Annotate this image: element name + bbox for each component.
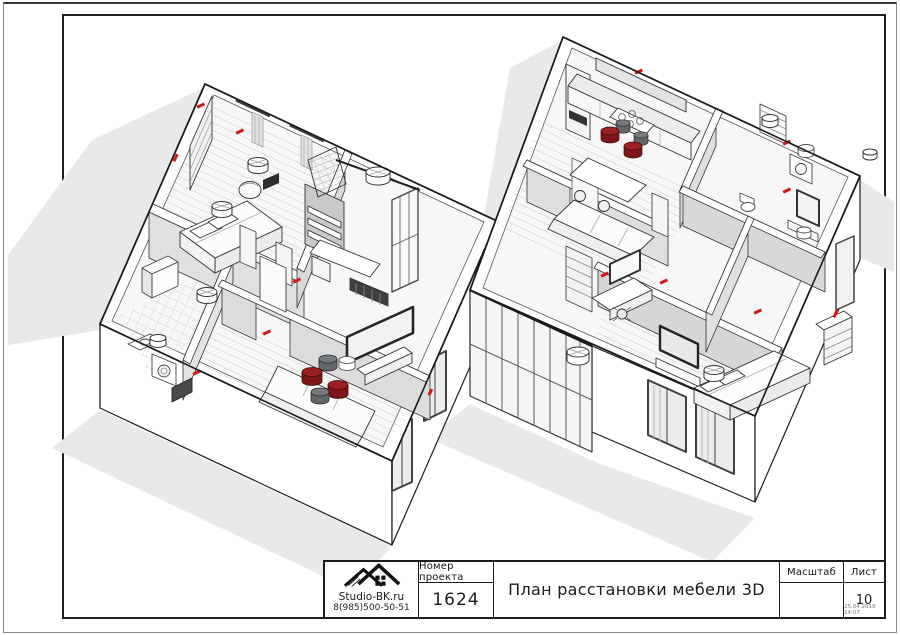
pouf-red bbox=[302, 368, 322, 386]
print-date-stamp: 25.04.2019 14:07 bbox=[844, 604, 882, 616]
side-table bbox=[339, 357, 355, 371]
drum-lamp bbox=[150, 335, 166, 348]
studio-brand-text: Studio-BK.ru bbox=[339, 591, 404, 603]
drum-lamp bbox=[762, 115, 778, 128]
title-block-title-cell: План расстановки мебели 3D bbox=[494, 562, 780, 617]
floor-plan-3d-drawing bbox=[0, 0, 900, 635]
pouf-gray bbox=[311, 388, 329, 404]
drum-lamp bbox=[212, 202, 232, 218]
title-block-project-number-cell: Номер проекта 1624 bbox=[419, 562, 494, 617]
desk-chair bbox=[617, 309, 627, 319]
armchair bbox=[239, 182, 261, 199]
dining-chair bbox=[599, 201, 610, 212]
drawing-sheet-page: { "title_block": { "brand": "Studio-BK.r… bbox=[0, 0, 900, 635]
sheet-label: Лист bbox=[844, 562, 884, 583]
title-block-logo-cell: Studio-BK.ru 8(985)500-50-51 bbox=[325, 562, 419, 617]
drum-lamp bbox=[704, 366, 724, 382]
hall-wardrobe bbox=[566, 246, 592, 312]
drum-lamp bbox=[863, 149, 877, 160]
project-number-value: 1624 bbox=[419, 583, 493, 617]
drawing-title: План расстановки мебели 3D bbox=[508, 580, 765, 599]
drum-lamp bbox=[248, 158, 268, 174]
project-number-label: Номер проекта bbox=[419, 562, 493, 583]
drum-lamp bbox=[567, 347, 589, 365]
title-block-scale-cell: Масштаб bbox=[780, 562, 844, 617]
title-block: Studio-BK.ru 8(985)500-50-51 Номер проек… bbox=[323, 560, 886, 619]
pouf-gray bbox=[319, 355, 337, 371]
dining-chair bbox=[575, 191, 586, 202]
scale-value bbox=[780, 583, 843, 617]
studio-phone-text: 8(985)500-50-51 bbox=[333, 603, 410, 614]
studio-bk-roofs-logo-icon bbox=[336, 562, 408, 589]
title-block-sheet-cell: Лист 10 25.04.2019 14:07 bbox=[844, 562, 884, 617]
pouf-red bbox=[328, 381, 348, 399]
stool bbox=[797, 227, 811, 239]
pendant-red bbox=[624, 142, 642, 158]
door-leaf bbox=[240, 225, 256, 269]
toilet bbox=[741, 203, 755, 212]
drum-lamp bbox=[197, 288, 217, 304]
scale-label: Масштаб bbox=[780, 562, 843, 583]
door-leaf bbox=[652, 193, 668, 237]
pendant-red bbox=[601, 127, 619, 143]
